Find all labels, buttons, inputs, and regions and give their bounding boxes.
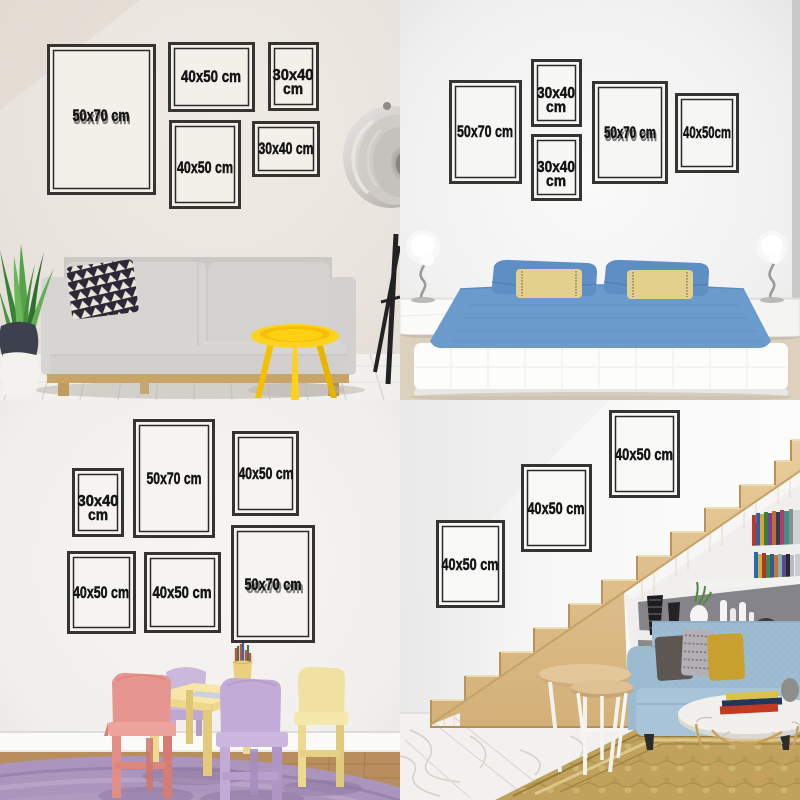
svg-text:cm: cm xyxy=(546,173,566,190)
svg-text:30x40 cm: 30x40 cm xyxy=(259,139,314,158)
svg-text:cm: cm xyxy=(88,507,108,524)
svg-text:40x50 cm: 40x50 cm xyxy=(239,464,294,483)
svg-text:50x70 cm: 50x70 cm xyxy=(73,106,130,125)
svg-text:40x50 cm: 40x50 cm xyxy=(181,67,241,86)
svg-text:40x50 cm: 40x50 cm xyxy=(153,583,212,602)
svg-text:40x50 cm: 40x50 cm xyxy=(615,445,673,464)
svg-text:40x50 cm: 40x50 cm xyxy=(528,499,585,518)
svg-text:50x70 cm: 50x70 cm xyxy=(457,122,513,141)
svg-text:40x50cm: 40x50cm xyxy=(683,123,731,142)
svg-text:40x50 cm: 40x50 cm xyxy=(177,158,233,177)
svg-text:50x70 cm: 50x70 cm xyxy=(147,469,202,488)
svg-text:40x50 cm: 40x50 cm xyxy=(73,583,129,602)
svg-text:cm: cm xyxy=(283,81,303,98)
svg-text:40x50 cm: 40x50 cm xyxy=(442,555,499,574)
svg-text:cm: cm xyxy=(546,99,566,116)
svg-text:50x70 cm: 50x70 cm xyxy=(604,123,656,142)
svg-text:50x70 cm: 50x70 cm xyxy=(245,575,302,594)
